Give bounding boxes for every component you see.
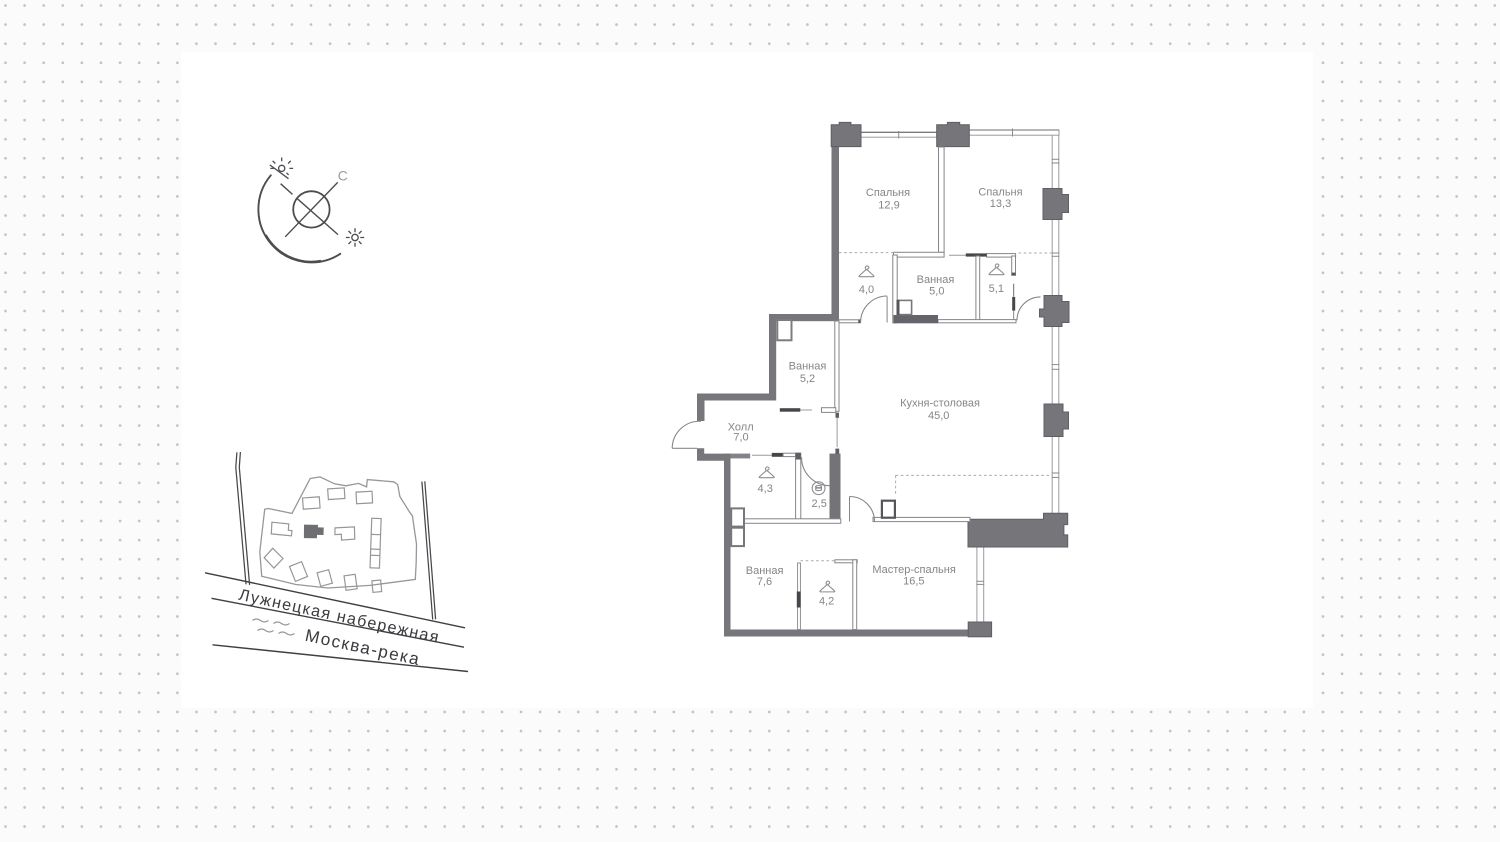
svg-text:Ванная: Ванная: [917, 274, 955, 286]
svg-text:45,0: 45,0: [928, 410, 949, 422]
svg-text:13,3: 13,3: [990, 198, 1011, 210]
svg-text:4,3: 4,3: [758, 483, 773, 495]
svg-text:Мастер-спальня: Мастер-спальня: [872, 564, 956, 576]
svg-text:2,5: 2,5: [812, 498, 827, 510]
svg-text:12,9: 12,9: [878, 200, 899, 212]
svg-text:16,5: 16,5: [903, 576, 924, 588]
svg-text:4,2: 4,2: [819, 596, 834, 608]
svg-text:4,0: 4,0: [859, 284, 874, 296]
svg-text:5,0: 5,0: [929, 286, 944, 298]
svg-text:7,0: 7,0: [733, 432, 748, 444]
svg-text:С: С: [338, 168, 348, 184]
svg-text:Ванная: Ванная: [789, 361, 827, 373]
svg-text:Спальня: Спальня: [866, 187, 910, 199]
svg-text:7,6: 7,6: [757, 576, 772, 588]
svg-text:Спальня: Спальня: [978, 187, 1022, 199]
svg-text:5,1: 5,1: [989, 283, 1004, 295]
svg-text:Кухня-столовая: Кухня-столовая: [900, 397, 980, 409]
svg-text:5,2: 5,2: [800, 373, 815, 385]
